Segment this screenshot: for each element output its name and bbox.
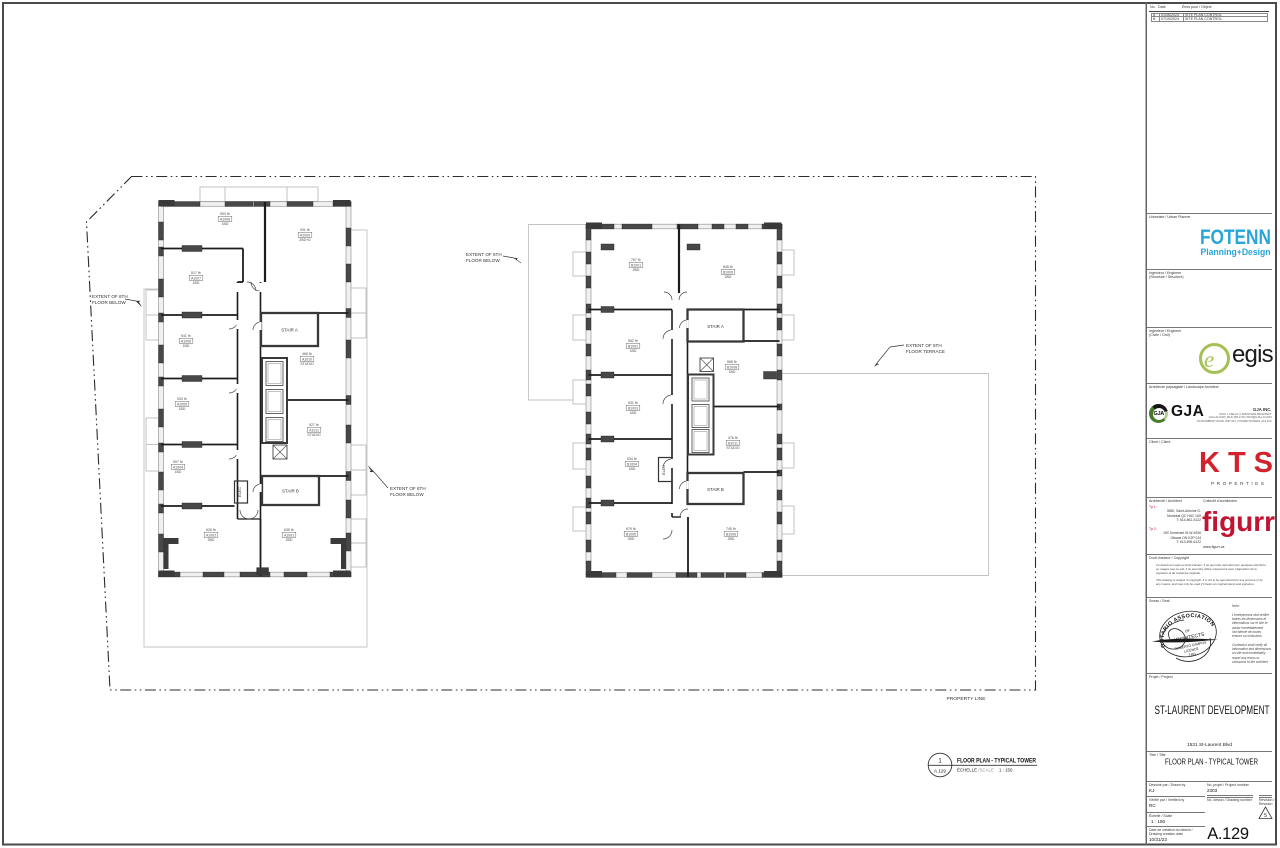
svg-text:STAIR B: STAIR B xyxy=(707,487,724,492)
svg-text:STAIR A: STAIR A xyxy=(281,328,298,333)
svg-text:EXTENT OF 5TH: EXTENT OF 5TH xyxy=(906,343,942,348)
svg-text:EXTENT OF 5TH: EXTENT OF 5TH xyxy=(466,252,502,257)
svg-text:STAIR B: STAIR B xyxy=(282,489,299,494)
svg-text:B1009: B1009 xyxy=(723,270,733,274)
svg-text:2BD: 2BD xyxy=(628,537,635,541)
svg-text:517 ft²: 517 ft² xyxy=(191,271,202,275)
svg-text:ELEC: ELEC xyxy=(662,465,666,475)
svg-text:EXTENT OF 6TH: EXTENT OF 6TH xyxy=(92,294,128,299)
svg-text:A1007: A1007 xyxy=(191,276,201,280)
svg-text:ELEC: ELEC xyxy=(238,487,242,497)
svg-text:533 ft²: 533 ft² xyxy=(177,397,188,401)
svg-text:2BD+D: 2BD+D xyxy=(299,238,311,242)
svg-text:466 ft²: 466 ft² xyxy=(302,352,313,356)
svg-text:B1004: B1004 xyxy=(627,462,637,466)
svg-text:FLOOR BELOW: FLOOR BELOW xyxy=(92,300,126,305)
svg-text:A1002: A1002 xyxy=(206,533,216,537)
svg-text:Planning+Design: Planning+Design xyxy=(1201,246,1271,257)
svg-text:B1006: B1006 xyxy=(726,532,736,536)
svg-text:1BD: 1BD xyxy=(179,407,186,411)
svg-text:568 ft²: 568 ft² xyxy=(727,360,738,364)
svg-text:626 ft²: 626 ft² xyxy=(206,528,217,532)
svg-text:507 ft²: 507 ft² xyxy=(173,460,184,464)
svg-text:B1011: B1011 xyxy=(728,441,738,445)
svg-text:527 ft²: 527 ft² xyxy=(309,423,320,427)
svg-text:1BD: 1BD xyxy=(630,411,637,415)
svg-text:1: 1 xyxy=(938,759,942,765)
svg-text:541 ft²: 541 ft² xyxy=(181,334,192,338)
svg-text:552 ft²: 552 ft² xyxy=(628,339,639,343)
svg-text:767 ft²: 767 ft² xyxy=(631,258,642,262)
svg-text:635 ft²: 635 ft² xyxy=(284,528,295,532)
svg-text:2BD: 2BD xyxy=(633,268,640,272)
svg-text:FLOOR PLAN - TYPICAL TOWER: FLOOR PLAN - TYPICAL TOWER xyxy=(1165,757,1258,767)
svg-text:PROPERTY LINE: PROPERTY LINE xyxy=(947,696,987,702)
svg-text:B1005: B1005 xyxy=(626,532,636,536)
svg-text:STUDIO: STUDIO xyxy=(726,446,740,450)
svg-text:OF: OF xyxy=(1185,628,1192,633)
svg-text:KTS: KTS xyxy=(1199,447,1273,479)
svg-text:1BD: 1BD xyxy=(729,370,736,374)
svg-text:1BD: 1BD xyxy=(222,222,229,226)
svg-text:FLOOR PLAN - TYPICAL TOWER: FLOOR PLAN - TYPICAL TOWER xyxy=(957,758,1036,765)
svg-text:ST-LAURENT DEVELOPMENT: ST-LAURENT DEVELOPMENT xyxy=(1155,704,1270,717)
svg-text:PROPERTIES: PROPERTIES xyxy=(1211,481,1264,487)
svg-text:845 ft²: 845 ft² xyxy=(723,265,734,269)
svg-text:1 : 150: 1 : 150 xyxy=(999,768,1013,773)
svg-text:A1001: A1001 xyxy=(284,533,294,537)
svg-text:679 ft²: 679 ft² xyxy=(626,527,637,531)
svg-text:531 ft²: 531 ft² xyxy=(628,401,639,405)
svg-text:B1001: B1001 xyxy=(631,263,641,267)
svg-text:2BD: 2BD xyxy=(286,538,293,542)
svg-text:476 ft²: 476 ft² xyxy=(728,436,739,440)
svg-text:553 ft²: 553 ft² xyxy=(220,212,231,216)
svg-text:EXTENT OF 6TH: EXTENT OF 6TH xyxy=(390,486,426,491)
svg-text:A1011: A1011 xyxy=(309,428,319,432)
svg-text:1BD: 1BD xyxy=(630,349,637,353)
svg-text:5: 5 xyxy=(1264,813,1267,819)
svg-text:2BD: 2BD xyxy=(208,538,215,542)
svg-text:1BD: 1BD xyxy=(193,281,200,285)
svg-text:FLOOR BELOW: FLOOR BELOW xyxy=(466,258,500,263)
svg-text:STUDIO: STUDIO xyxy=(307,433,321,437)
svg-text:A.129: A.129 xyxy=(934,769,946,774)
svg-text:ÉCHELLE /SCALE: ÉCHELLE /SCALE xyxy=(957,768,994,773)
svg-text:STAIR A: STAIR A xyxy=(707,324,724,329)
svg-text:FLOOR TERRACE: FLOOR TERRACE xyxy=(906,349,945,354)
svg-text:1BD: 1BD xyxy=(183,344,190,348)
svg-text:745 ft²: 745 ft² xyxy=(726,527,737,531)
svg-text:931 ft²: 931 ft² xyxy=(300,228,311,232)
svg-text:A1010: A1010 xyxy=(302,357,312,361)
svg-text:A1005: A1005 xyxy=(177,402,187,406)
svg-text:STUDIO: STUDIO xyxy=(300,362,314,366)
svg-text:B1008: B1008 xyxy=(727,365,737,369)
svg-text:A1004: A1004 xyxy=(173,465,183,469)
svg-text:FLOOR BELOW: FLOOR BELOW xyxy=(390,492,424,497)
svg-text:B1003: B1003 xyxy=(628,406,638,410)
svg-text:534 ft²: 534 ft² xyxy=(627,457,638,461)
svg-text:figurr: figurr xyxy=(1202,506,1275,537)
svg-text:7481: 7481 xyxy=(1188,652,1196,658)
svg-text:A1009: A1009 xyxy=(300,233,310,237)
svg-text:A1008: A1008 xyxy=(220,217,230,221)
svg-text:A1006: A1006 xyxy=(181,339,191,343)
svg-text:1BD: 1BD xyxy=(629,467,636,471)
svg-text:1BD: 1BD xyxy=(175,470,182,474)
svg-text:2BD: 2BD xyxy=(725,275,732,279)
svg-text:2BD: 2BD xyxy=(728,537,735,541)
svg-text:B1002: B1002 xyxy=(628,344,638,348)
